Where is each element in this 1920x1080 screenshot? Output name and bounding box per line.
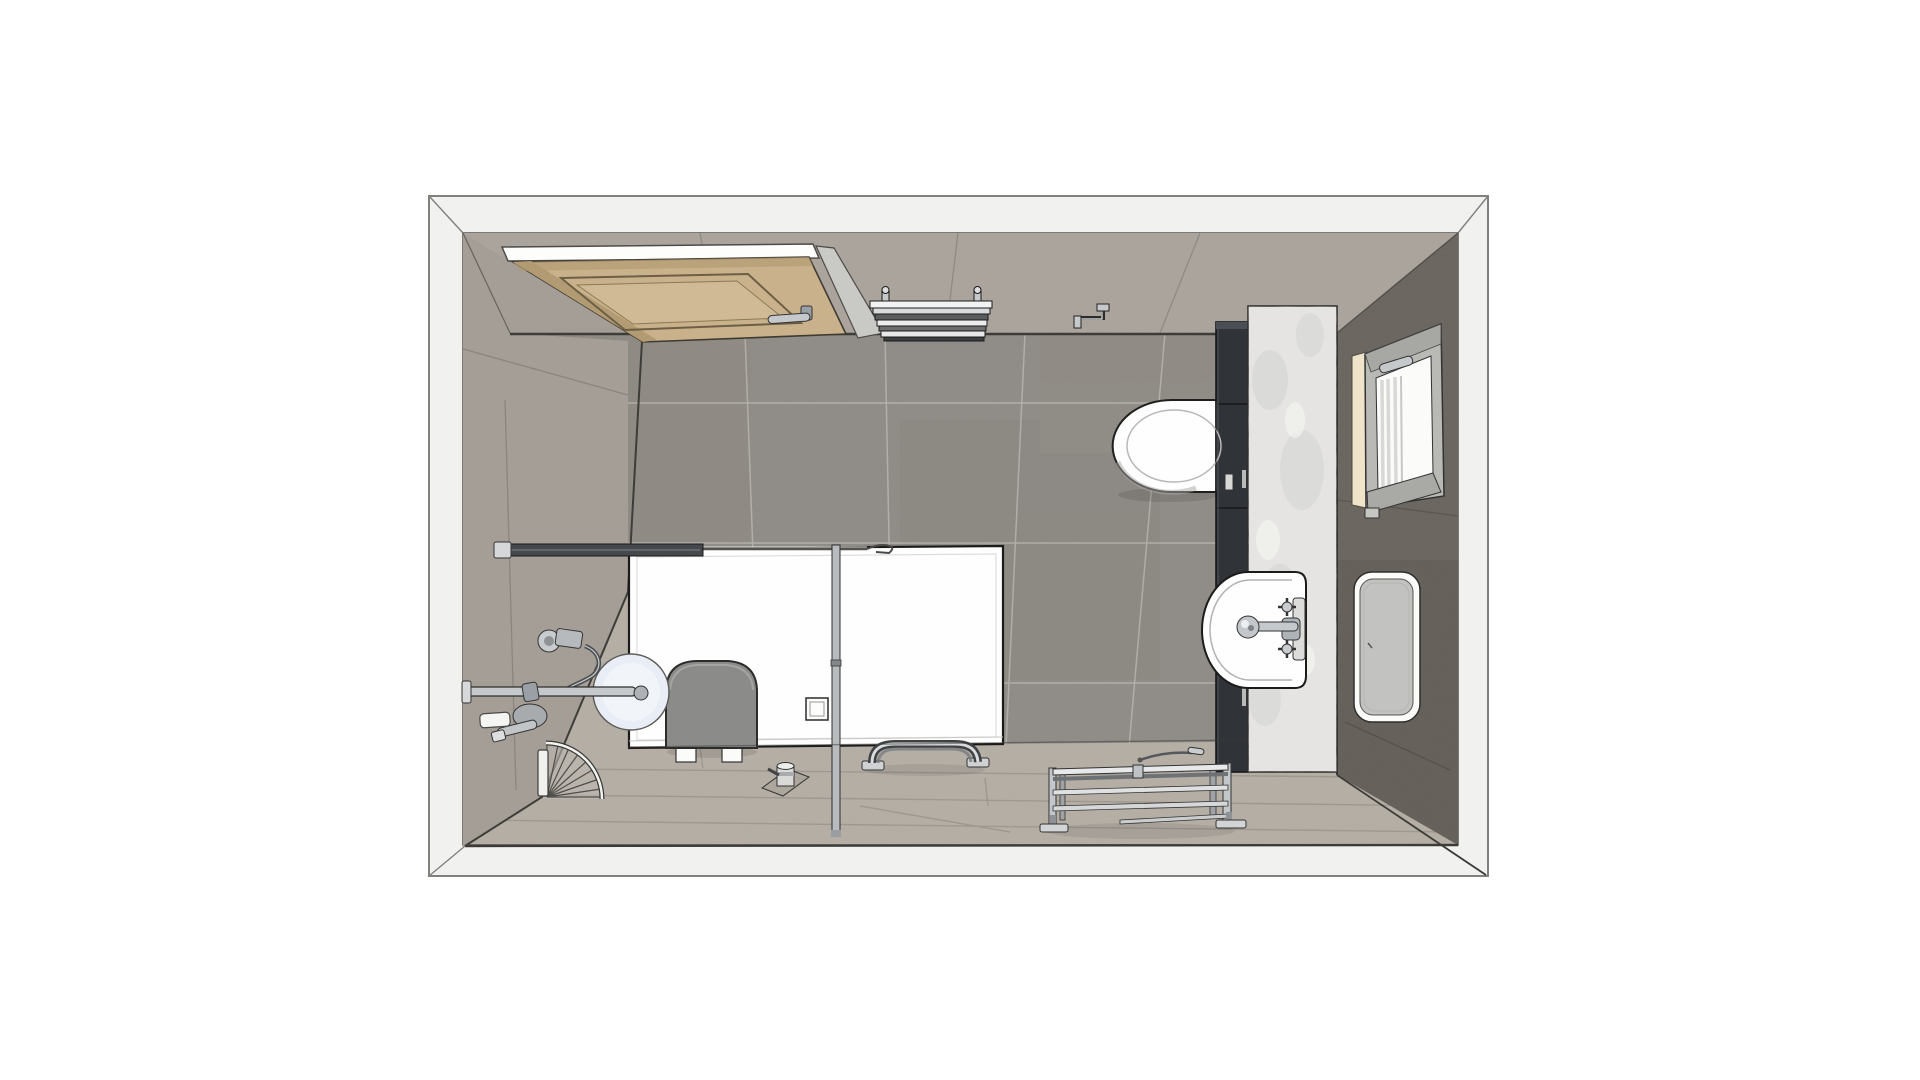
marble-veins	[1248, 306, 1337, 772]
toilet-flush-plate	[1225, 474, 1233, 490]
shower-drain	[806, 698, 828, 720]
handshower-knob	[634, 686, 648, 700]
washbasin	[1202, 572, 1306, 688]
bathroom-render-canvas	[0, 0, 1920, 1080]
bench-foot-right	[1216, 820, 1246, 828]
slide-bar-wall-flange	[462, 681, 471, 703]
mirror	[1354, 572, 1420, 722]
shower-slide-bar	[466, 687, 636, 696]
basket-wall-bar	[538, 750, 548, 796]
mirror-glass	[1360, 579, 1413, 715]
marble-column	[1248, 306, 1337, 772]
window	[1352, 324, 1444, 518]
shower-rail-wall-bracket	[494, 542, 511, 558]
shower-wall-elbow	[555, 628, 583, 648]
bench-foot-left	[1040, 824, 1068, 832]
window-sill-tab	[1365, 508, 1379, 518]
cabinet-top-cap	[1216, 322, 1248, 329]
slide-bar-clamp	[522, 682, 540, 702]
cabinet-handle-lower	[1242, 688, 1246, 706]
shower-glass-pole	[832, 545, 840, 836]
floor-plan-svg	[0, 0, 1920, 1080]
seat-cushion	[666, 661, 757, 748]
soap-shelf	[480, 712, 511, 728]
bench-clip	[1133, 765, 1143, 778]
window-sill-reveal	[1352, 352, 1366, 508]
cabinet-handle-upper	[1242, 470, 1246, 488]
